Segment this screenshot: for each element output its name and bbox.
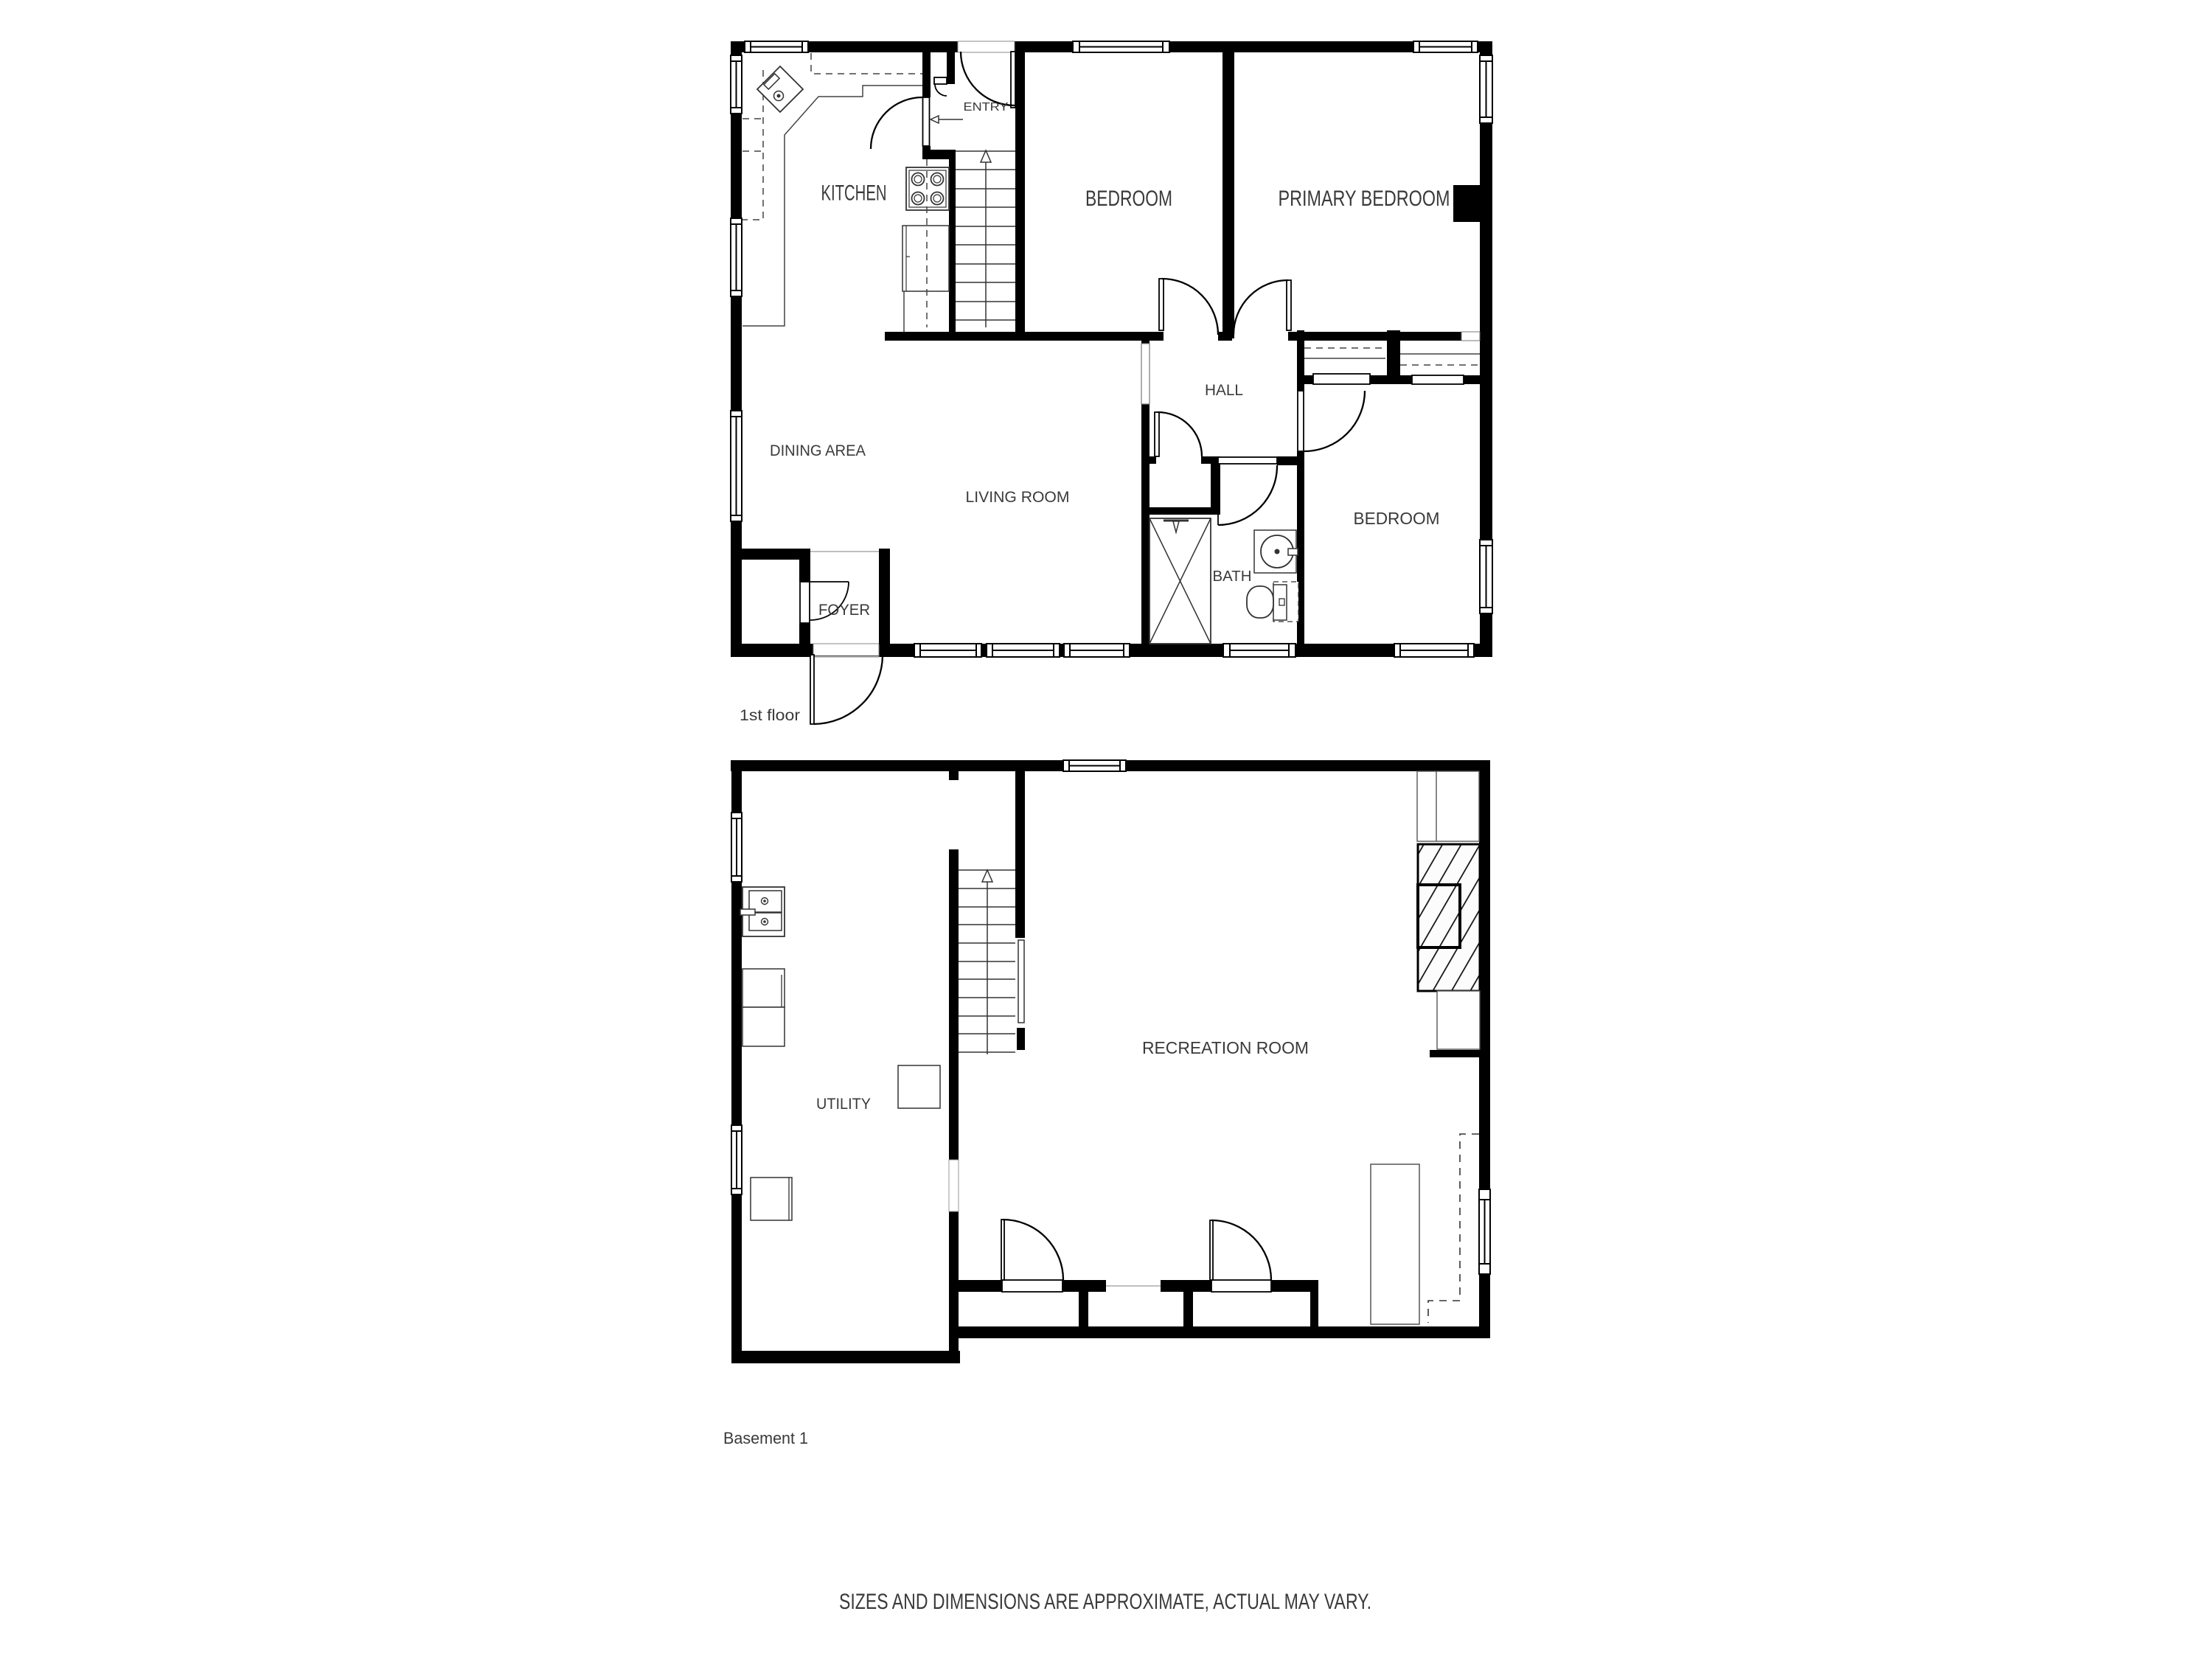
svg-text:LIVING ROOM: LIVING ROOM — [966, 488, 1070, 506]
svg-text:UTILITY: UTILITY — [816, 1095, 871, 1113]
svg-text:BEDROOM: BEDROOM — [1354, 509, 1440, 528]
svg-text:PRIMARY BEDROOM: PRIMARY BEDROOM — [1279, 187, 1450, 211]
svg-text:1st floor: 1st floor — [740, 706, 800, 724]
svg-text:DINING AREA: DINING AREA — [770, 442, 866, 459]
svg-text:FOYER: FOYER — [818, 601, 870, 619]
svg-text:BATH: BATH — [1213, 568, 1252, 585]
svg-text:SIZES AND DIMENSIONS ARE APPRO: SIZES AND DIMENSIONS ARE APPROXIMATE, AC… — [839, 1590, 1371, 1614]
svg-text:KITCHEN: KITCHEN — [821, 181, 887, 206]
svg-text:Basement 1: Basement 1 — [723, 1429, 808, 1447]
svg-text:HALL: HALL — [1205, 381, 1243, 399]
svg-text:ENTRY: ENTRY — [964, 101, 1009, 114]
svg-text:RECREATION ROOM: RECREATION ROOM — [1142, 1038, 1309, 1057]
svg-text:BEDROOM: BEDROOM — [1085, 187, 1172, 211]
